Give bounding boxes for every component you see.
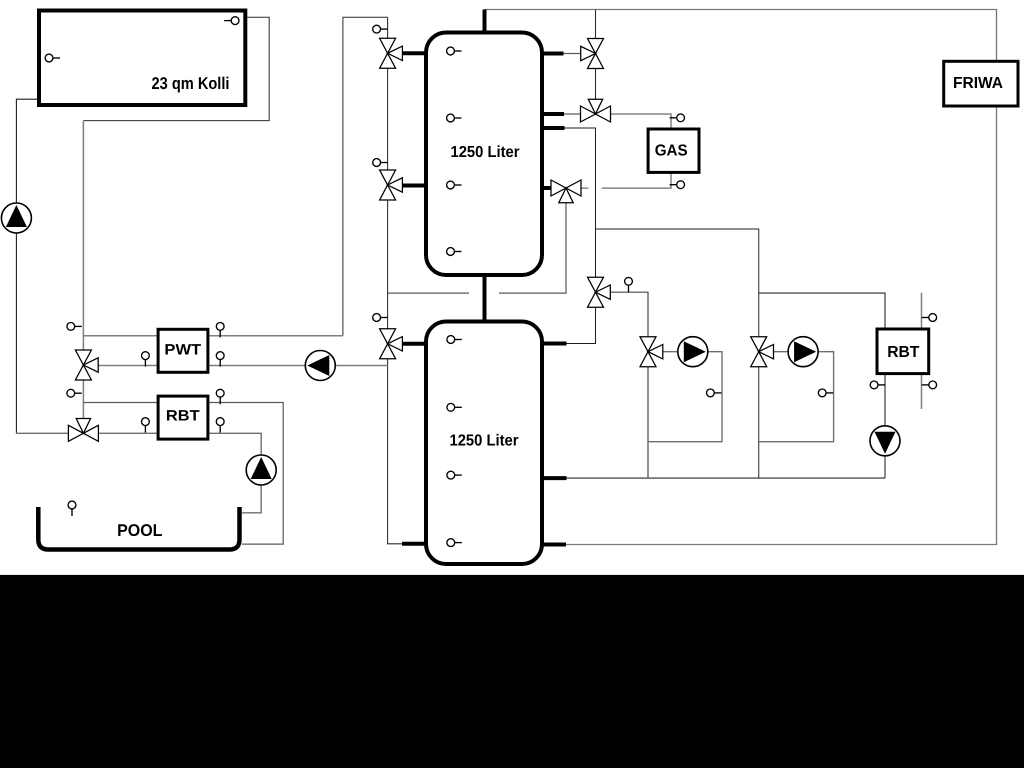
svg-text:1250 Liter: 1250 Liter [451,144,520,161]
svg-text:23 qm Kolli: 23 qm Kolli [152,74,230,93]
svg-text:1250 Liter: 1250 Liter [450,433,519,450]
svg-text:PWT: PWT [164,341,201,358]
svg-text:GAS: GAS [655,143,688,160]
svg-text:RBT: RBT [887,344,919,361]
svg-text:FRIWA: FRIWA [953,75,1003,92]
svg-text:POOL: POOL [117,521,162,540]
svg-text:RBT: RBT [166,408,200,425]
